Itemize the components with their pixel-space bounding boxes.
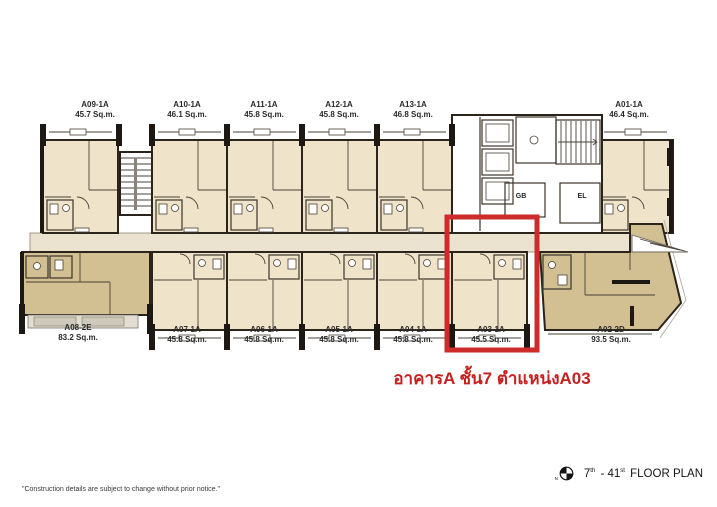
unit-label-a12: A12-1A45.8 Sq.m. <box>319 100 359 120</box>
unit-label-a09: A09-1A45.7 Sq.m. <box>75 100 115 120</box>
plan-title: N 7th - 41st FLOOR PLAN <box>555 466 703 481</box>
floor-plan-page: A09-1A45.7 Sq.m. A10-1A46.1 Sq.m. A11-1A… <box>0 0 717 507</box>
unit-label-a05: A05-1A45.8 Sq.m. <box>319 325 359 345</box>
gb-room-label: GB <box>516 193 527 200</box>
unit-label-a08: A08-2E83.2 Sq.m. <box>58 323 98 343</box>
unit-label-a06: A06-1A45.8 Sq.m. <box>244 325 284 345</box>
plan-title-text: 7th - 41st FLOOR PLAN <box>584 468 703 480</box>
unit-label-a10: A10-1A46.1 Sq.m. <box>167 100 207 120</box>
unit-label-a03: A03-1A45.5 Sq.m. <box>471 325 511 345</box>
el-room-label: EL <box>578 193 587 200</box>
unit-label-a13: A13-1A46.8 Sq.m. <box>393 100 433 120</box>
unit-label-a11: A11-1A45.8 Sq.m. <box>244 100 284 120</box>
unit-label-a01: A01-1A46.4 Sq.m. <box>609 100 649 120</box>
north-compass-icon: N <box>555 466 574 481</box>
highlight-annotation: อาคารA ชั้น7 ตำแหน่งA03 <box>393 365 590 392</box>
floor-plan-drawing <box>0 0 717 507</box>
unit-label-a07: A07-1A45.8 Sq.m. <box>167 325 207 345</box>
unit-label-a02: A02-2D93.5 Sq.m. <box>591 325 631 345</box>
disclaimer-text: "Construction details are subject to cha… <box>22 486 220 493</box>
elevator-shafts <box>482 120 513 204</box>
corridor <box>30 233 638 252</box>
unit-label-a04: A04-1A45.8 Sq.m. <box>393 325 433 345</box>
west-stair <box>120 152 152 215</box>
unit-a08 <box>19 252 153 334</box>
